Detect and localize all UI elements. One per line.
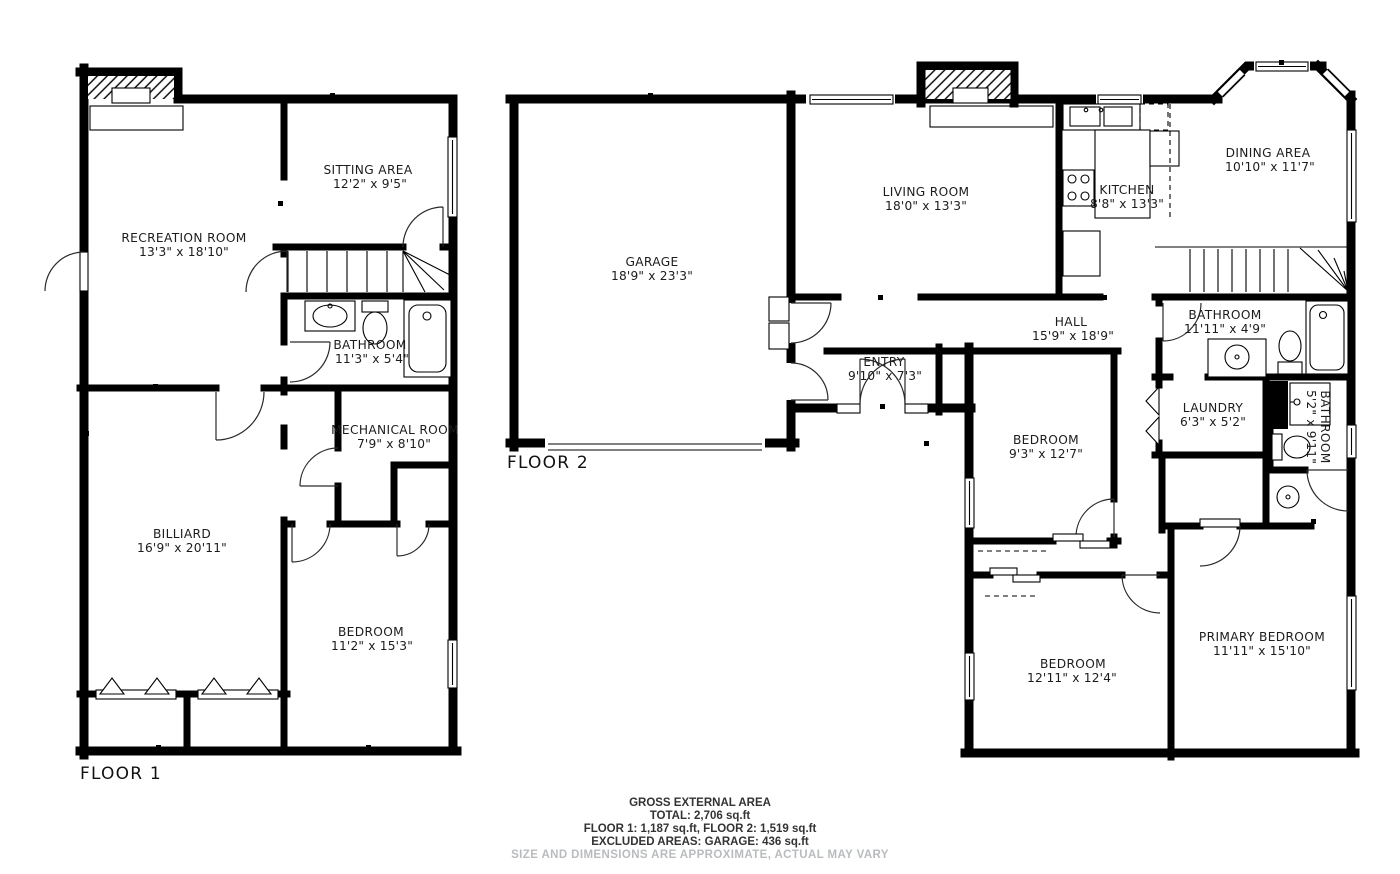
room-dims: 18'0" x 13'3" xyxy=(885,199,967,213)
door-arc xyxy=(791,303,831,343)
room-label: BATHROOM xyxy=(1318,390,1332,463)
room-label: BATHROOM xyxy=(333,338,406,352)
footer-floors: FLOOR 1: 1,187 sq.ft, FLOOR 2: 1,519 sq.… xyxy=(584,823,817,835)
firebox-notch xyxy=(112,88,150,103)
room-label: BEDROOM xyxy=(1013,433,1079,447)
footer-disclaimer: SIZE AND DIMENSIONS ARE APPROXIMATE, ACT… xyxy=(511,849,889,861)
toilet-tank xyxy=(1278,362,1302,374)
cabinet xyxy=(1063,231,1100,276)
fridge xyxy=(1150,131,1179,166)
door-arc xyxy=(290,342,330,382)
sliding-door xyxy=(1053,534,1083,541)
door-arc xyxy=(403,207,443,247)
room-label: BILLIARD xyxy=(153,527,211,541)
footer-title: GROSS EXTERNAL AREA xyxy=(629,797,771,809)
room-dims: 15'9" x 18'9" xyxy=(1032,329,1114,343)
rotated-bathroom-label: BATHROOM 5'2" x 9'11" xyxy=(1304,390,1332,464)
bifold-door-icon xyxy=(1146,387,1159,445)
bay-window xyxy=(1220,72,1242,94)
floor1-title: FLOOR 1 xyxy=(80,764,162,784)
room-label: HALL xyxy=(1055,315,1087,329)
door-arc xyxy=(292,524,330,562)
room-label: BEDROOM xyxy=(338,625,404,639)
sliding-door xyxy=(990,568,1017,575)
door-arc xyxy=(791,363,828,400)
door-arc xyxy=(1200,526,1240,566)
room-label: PRIMARY BEDROOM xyxy=(1199,630,1325,644)
door-arc xyxy=(300,448,338,486)
room-dims: 12'2" x 9'5" xyxy=(333,177,407,191)
shower-wall xyxy=(1266,381,1288,429)
room-dims: 11'11" x 4'9" xyxy=(1184,322,1266,336)
room-dims: 6'3" x 5'2" xyxy=(1180,415,1246,429)
bay-window xyxy=(1325,72,1347,94)
floor-1: SITTING AREA 12'2" x 9'5" RECREATION ROO… xyxy=(45,68,459,784)
footer-area-summary: GROSS EXTERNAL AREA TOTAL: 2,706 sq.ft F… xyxy=(511,797,889,861)
sidelight-window xyxy=(837,404,860,413)
room-label: KITCHEN xyxy=(1099,183,1154,197)
room-dims: 12'11" x 12'4" xyxy=(1027,671,1117,685)
room-dims: 16'9" x 20'11" xyxy=(137,541,227,555)
door-leaf xyxy=(80,252,88,291)
floor1-opening-markers xyxy=(83,93,371,750)
room-dims: 5'2" x 9'11" xyxy=(1304,390,1318,464)
room-label: BATHROOM xyxy=(1188,308,1261,322)
stairs-floor1 xyxy=(288,251,452,292)
room-dims: 11'3" x 5'4" xyxy=(335,352,409,366)
hearth xyxy=(930,106,1053,127)
toilet-tank xyxy=(362,301,388,312)
door-arc xyxy=(1076,499,1114,537)
toilet-icon xyxy=(1279,331,1301,361)
firebox-notch xyxy=(953,88,988,103)
room-dims: 7'9" x 8'10" xyxy=(357,437,431,451)
room-label: LAUNDRY xyxy=(1183,401,1244,415)
room-label: LIVING ROOM xyxy=(883,185,970,199)
sink-icon xyxy=(1277,486,1299,508)
room-dims: 11'2" x 15'3" xyxy=(331,639,413,653)
floor-2: GARAGE 18'9" x 23'3" LIVING ROOM 18'0" x… xyxy=(507,60,1357,757)
sliding-door xyxy=(1013,575,1040,582)
toilet-tank xyxy=(1272,434,1282,460)
hearth xyxy=(90,106,183,130)
sliding-door xyxy=(1080,541,1110,548)
room-label: GARAGE xyxy=(625,255,678,269)
fireplace-floor1 xyxy=(88,76,183,130)
door-arc xyxy=(397,524,429,556)
floor2-title: FLOOR 2 xyxy=(507,453,589,473)
door-arc xyxy=(1307,470,1348,511)
floor1-windows xyxy=(96,137,458,699)
floorplan: SITTING AREA 12'2" x 9'5" RECREATION ROO… xyxy=(0,0,1400,874)
room-dims: 9'3" x 12'7" xyxy=(1009,447,1083,461)
room-dims: 18'9" x 23'3" xyxy=(611,269,693,283)
garage-door xyxy=(548,297,789,450)
room-label: ENTRY xyxy=(863,355,904,369)
footer-excluded: EXCLUDED AREAS: GARAGE: 436 sq.ft xyxy=(591,836,809,848)
sidelight-window xyxy=(905,404,928,413)
room-label: MECHANICAL ROOM xyxy=(331,423,459,437)
room-dims: 10'10" x 11'7" xyxy=(1225,160,1315,174)
room-dims: 8'8" x 13'3" xyxy=(1090,197,1164,211)
room-dims: 13'3" x 18'10" xyxy=(139,245,229,259)
bathtub-icon xyxy=(1306,301,1348,374)
room-label: RECREATION ROOM xyxy=(121,231,246,245)
stairs-floor2 xyxy=(1155,247,1348,292)
room-label: BEDROOM xyxy=(1040,657,1106,671)
door-leaf xyxy=(1200,519,1240,527)
room-dims: 9'10" x 7'3" xyxy=(848,369,922,383)
footer-total: TOTAL: 2,706 sq.ft xyxy=(650,810,751,822)
floorplan-svg: SITTING AREA 12'2" x 9'5" RECREATION ROO… xyxy=(0,0,1400,874)
room-label: DINING AREA xyxy=(1226,146,1311,160)
dishwasher xyxy=(1140,104,1168,130)
door-arc xyxy=(1122,575,1160,613)
sink-icon xyxy=(1225,345,1249,369)
floor2-labels: GARAGE 18'9" x 23'3" LIVING ROOM 18'0" x… xyxy=(507,146,1332,685)
room-dims: 11'11" x 15'10" xyxy=(1213,644,1311,658)
room-label: SITTING AREA xyxy=(323,163,412,177)
door-arc xyxy=(216,392,264,440)
